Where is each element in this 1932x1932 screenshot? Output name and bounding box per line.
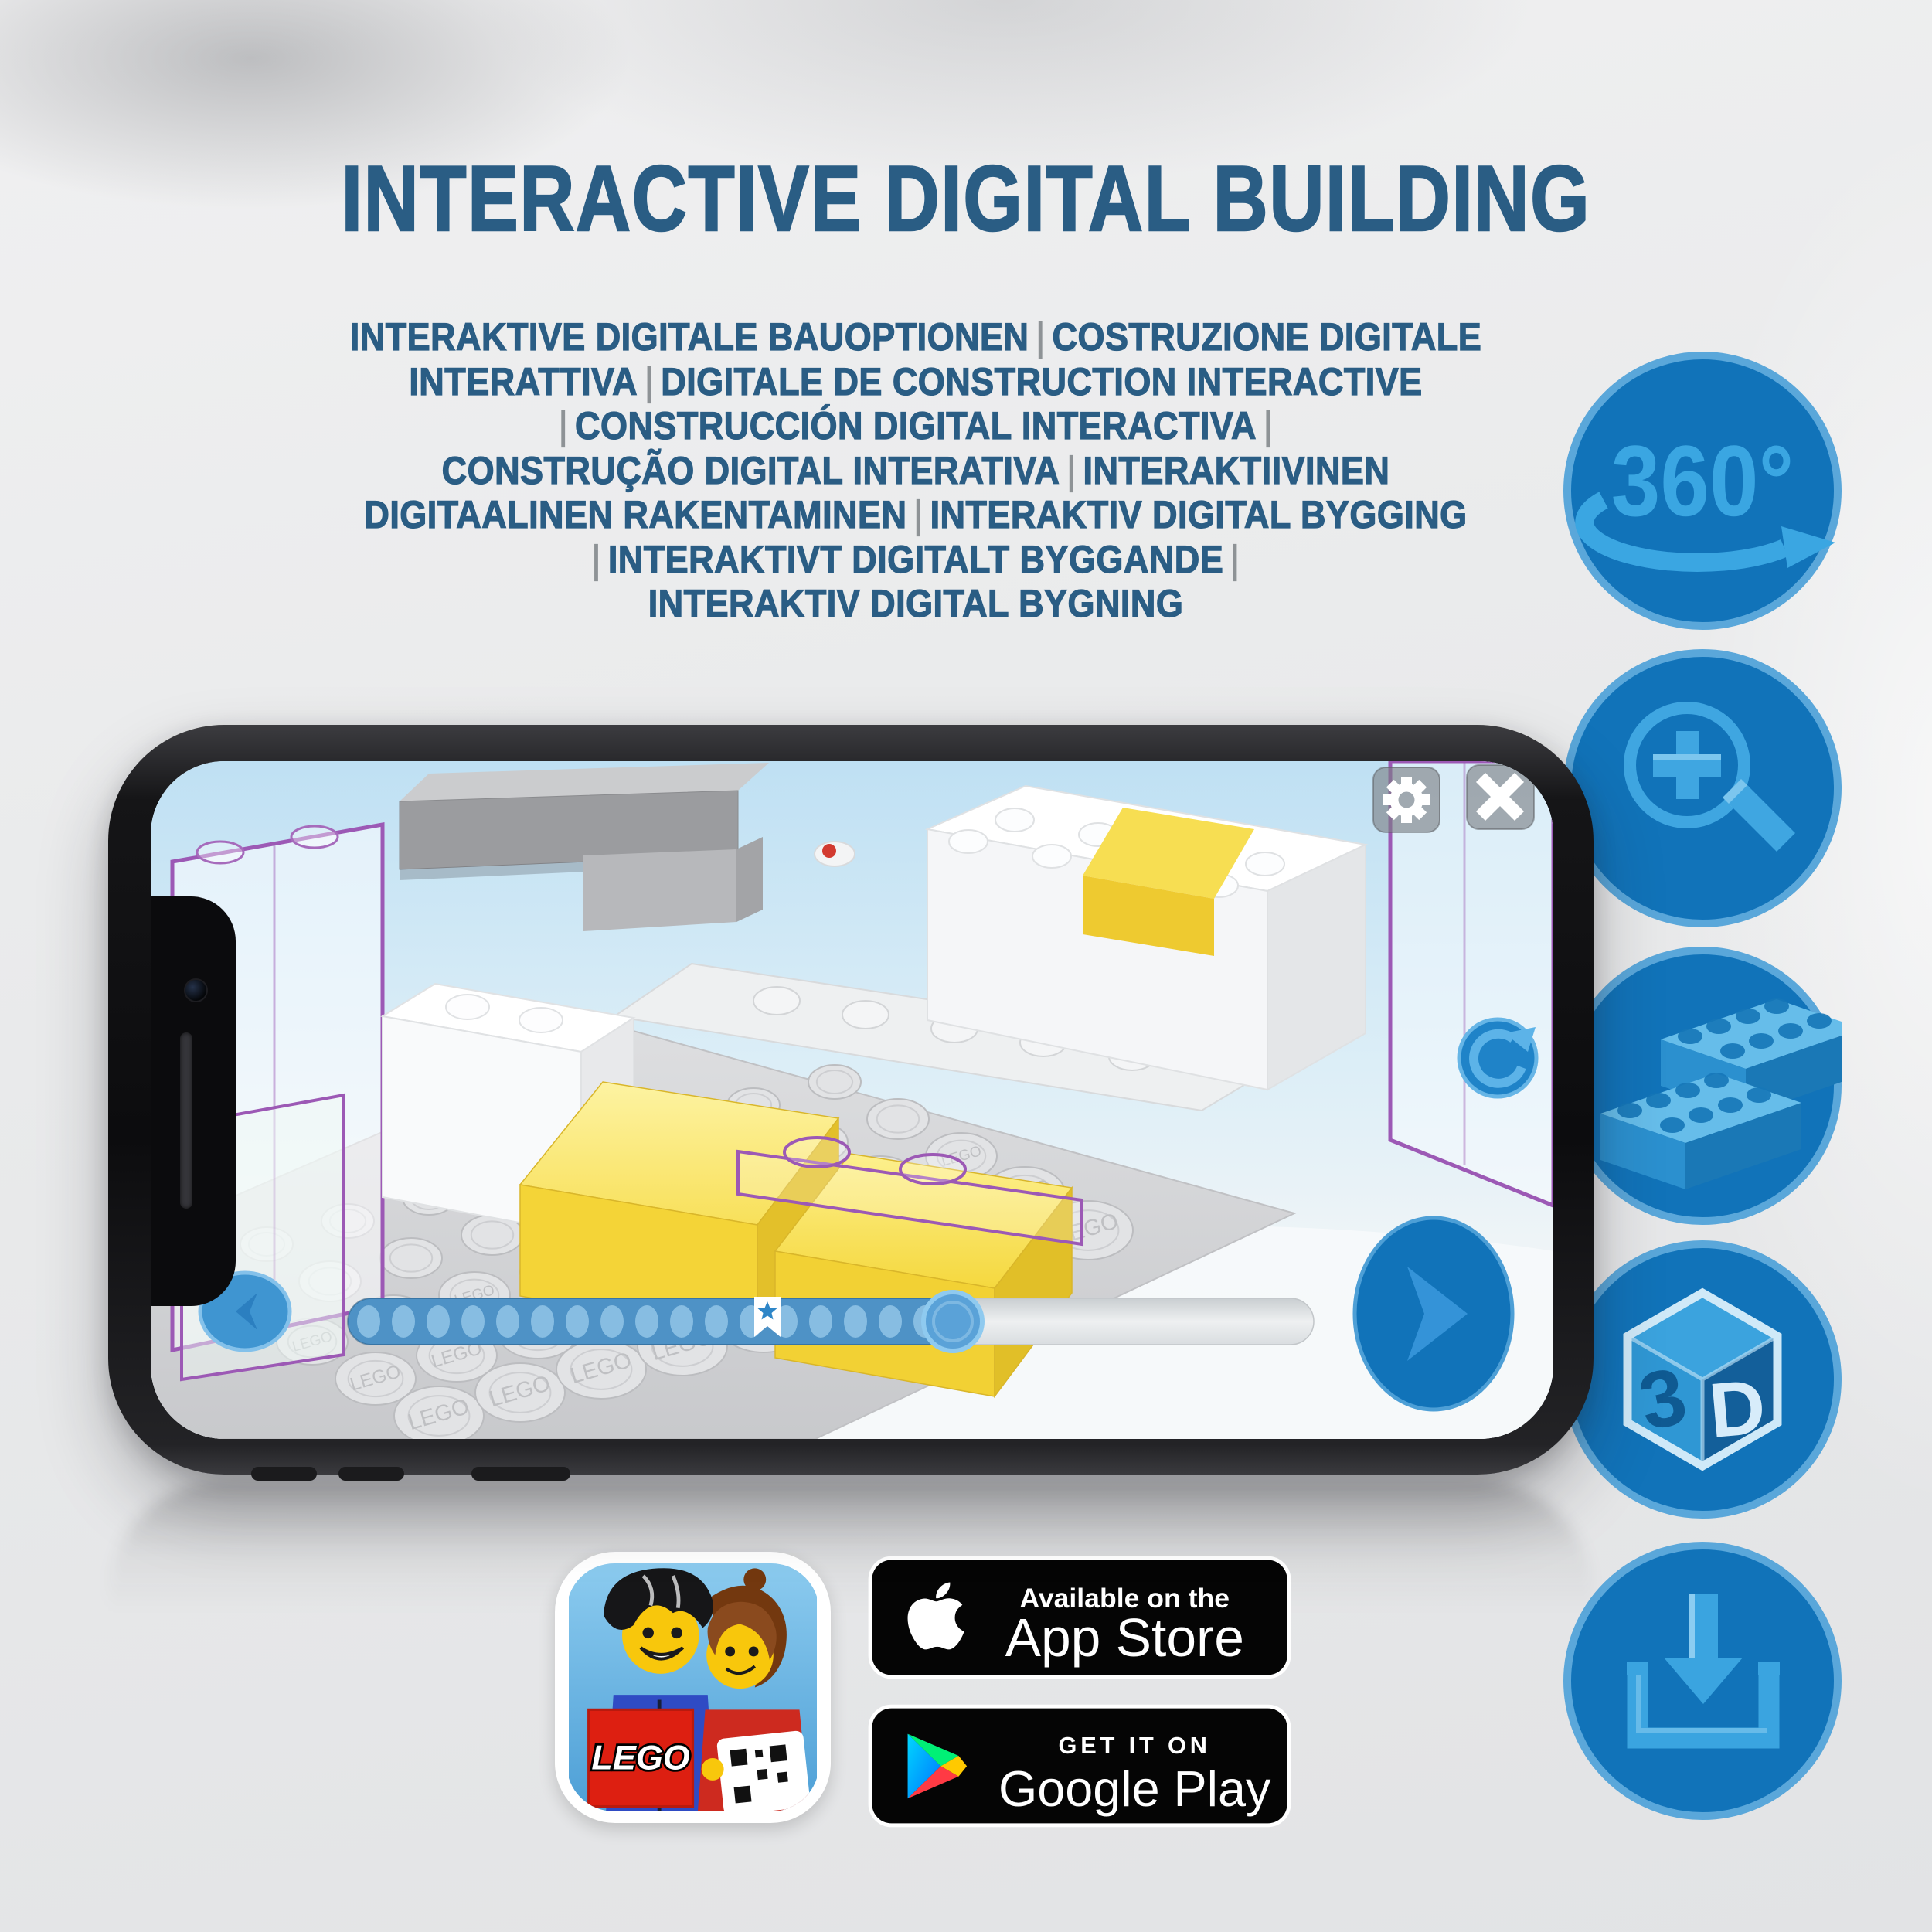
lego-app-icon-art: LEGO bbox=[566, 1563, 819, 1811]
minifigure-piece bbox=[815, 842, 855, 866]
close-button[interactable] bbox=[1467, 765, 1534, 829]
volume-button[interactable] bbox=[338, 1467, 404, 1481]
cube-face-d: D bbox=[1706, 1363, 1769, 1454]
feature-360-rotation: 360° bbox=[1563, 352, 1842, 630]
volume-button[interactable] bbox=[251, 1467, 317, 1481]
progress-handle[interactable] bbox=[923, 1292, 982, 1351]
feature-zoom-in bbox=[1563, 649, 1842, 927]
app-store-name: App Store bbox=[1005, 1607, 1244, 1668]
lego-app-icon[interactable]: LEGO bbox=[555, 1552, 831, 1823]
subtitle: INTERAKTIVE DIGITALE BAUOPTIONEN|COSTRUZ… bbox=[196, 315, 1636, 627]
subtitle-line: |CONSTRUCCIÓN DIGITAL INTERACTIVA| bbox=[196, 404, 1636, 449]
feature-3d-view: 3 D bbox=[1563, 1240, 1842, 1519]
rotate-360-icon: 360° bbox=[1563, 352, 1842, 630]
page-title: INTERACTIVE DIGITAL BUILDING bbox=[174, 145, 1758, 252]
google-play-badge[interactable]: GET IT ON Google Play bbox=[867, 1703, 1292, 1828]
phone-screen: LEGOLEGOLEGOLEGOLEGOLEGOLEGOLEGOLEGOLEGO… bbox=[151, 761, 1553, 1439]
subtitle-line: INTERAKTIV DIGITAL BYGNING bbox=[196, 582, 1636, 627]
front-camera bbox=[184, 978, 208, 1002]
google-play-top-line: GET IT ON bbox=[1059, 1732, 1211, 1759]
building-instructions-app-scene: LEGOLEGOLEGOLEGOLEGOLEGOLEGOLEGOLEGOLEGO… bbox=[151, 761, 1553, 1439]
progress-step-dots bbox=[357, 1305, 937, 1338]
earpiece-speaker bbox=[180, 1032, 192, 1209]
lego-logo: LEGO bbox=[591, 1737, 689, 1777]
progress-bar[interactable] bbox=[348, 1292, 1314, 1351]
google-play-name: Google Play bbox=[998, 1760, 1271, 1817]
qr-code-card bbox=[716, 1730, 811, 1811]
rotate-button[interactable] bbox=[1459, 1019, 1536, 1097]
subtitle-line: DIGITAALINEN RAKENTAMINEN|INTERAKTIV DIG… bbox=[196, 493, 1636, 538]
feature-label: 360° bbox=[1611, 424, 1794, 536]
subtitle-line: CONSTRUÇÃO DIGITAL INTERATIVA|INTERAKTII… bbox=[196, 449, 1636, 494]
zoom-in-icon bbox=[1563, 649, 1842, 927]
settings-button[interactable] bbox=[1373, 767, 1440, 832]
phone: LEGOLEGOLEGOLEGOLEGOLEGOLEGOLEGOLEGOLEGO… bbox=[108, 725, 1594, 1475]
phone-reflection bbox=[108, 1481, 1594, 1612]
feature-download bbox=[1563, 1542, 1842, 1820]
bricks-icon bbox=[1563, 947, 1842, 1225]
subtitle-line: INTERATTIVA|DIGITALE DE CONSTRUCTION INT… bbox=[196, 360, 1636, 405]
next-button[interactable] bbox=[1355, 1218, 1512, 1410]
download-icon bbox=[1563, 1542, 1842, 1820]
poster: INTERACTIVE DIGITAL BUILDING INTERAKTIVE… bbox=[0, 0, 1932, 1932]
feature-brick-options bbox=[1563, 947, 1842, 1225]
cube-3d-icon: 3 D bbox=[1563, 1240, 1842, 1519]
power-button[interactable] bbox=[471, 1467, 570, 1481]
subtitle-line: INTERAKTIVE DIGITALE BAUOPTIONEN|COSTRUZ… bbox=[196, 315, 1636, 360]
subtitle-line: |INTERAKTIVT DIGITALT BYGGANDE| bbox=[196, 538, 1636, 583]
app-store-badge[interactable]: Available on the App Store bbox=[867, 1555, 1292, 1680]
phone-notch bbox=[151, 896, 236, 1306]
